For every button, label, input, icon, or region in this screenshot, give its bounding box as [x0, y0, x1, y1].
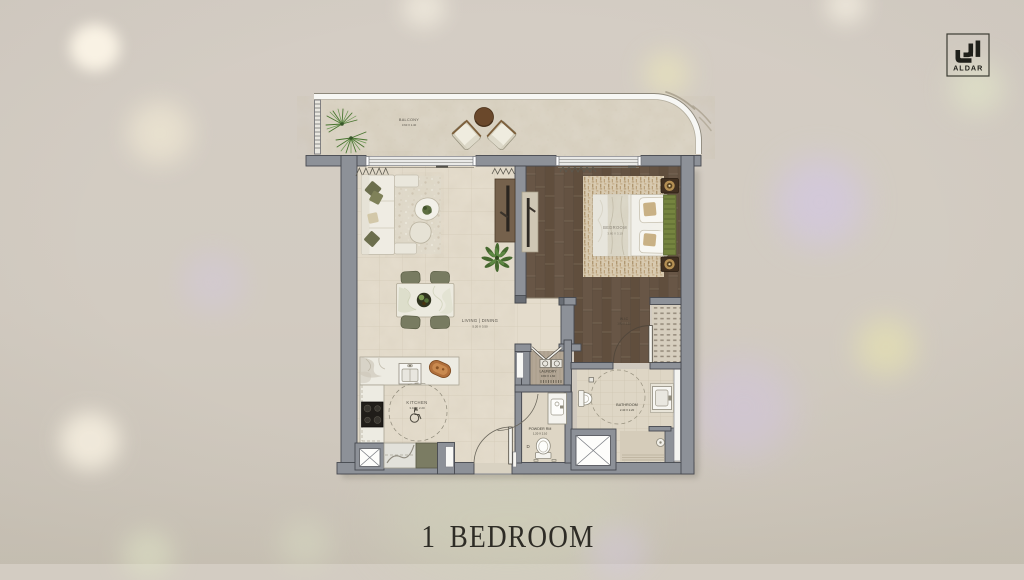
svg-text:BALCONY: BALCONY — [399, 118, 419, 122]
svg-text:W.I.C: W.I.C — [620, 317, 629, 321]
svg-text:3.60 X 3.10: 3.60 X 3.10 — [607, 232, 623, 236]
svg-text:3.60 X 1.40: 3.60 X 1.40 — [402, 123, 417, 127]
svg-text:5.20 X 3.50: 5.20 X 3.50 — [472, 325, 488, 329]
svg-text:BEDROOM: BEDROOM — [603, 225, 627, 230]
svg-text:2.40 X 2.20: 2.40 X 2.20 — [620, 408, 635, 412]
svg-text:BATHROOM: BATHROOM — [616, 403, 638, 407]
svg-text:1.20 X 2.10: 1.20 X 2.10 — [533, 432, 548, 436]
svg-text:0.80 X 1.60: 0.80 X 1.60 — [541, 374, 556, 378]
svg-text:KITCHEN: KITCHEN — [406, 400, 427, 405]
svg-text:1.80 X 1.20: 1.80 X 1.20 — [617, 321, 631, 325]
svg-text:POWDER RM: POWDER RM — [529, 427, 552, 431]
svg-text:LIVING | DINING: LIVING | DINING — [462, 318, 498, 323]
svg-text:ALDAR: ALDAR — [953, 64, 983, 73]
svg-text:3.10 X 2.20: 3.10 X 2.20 — [409, 406, 425, 410]
